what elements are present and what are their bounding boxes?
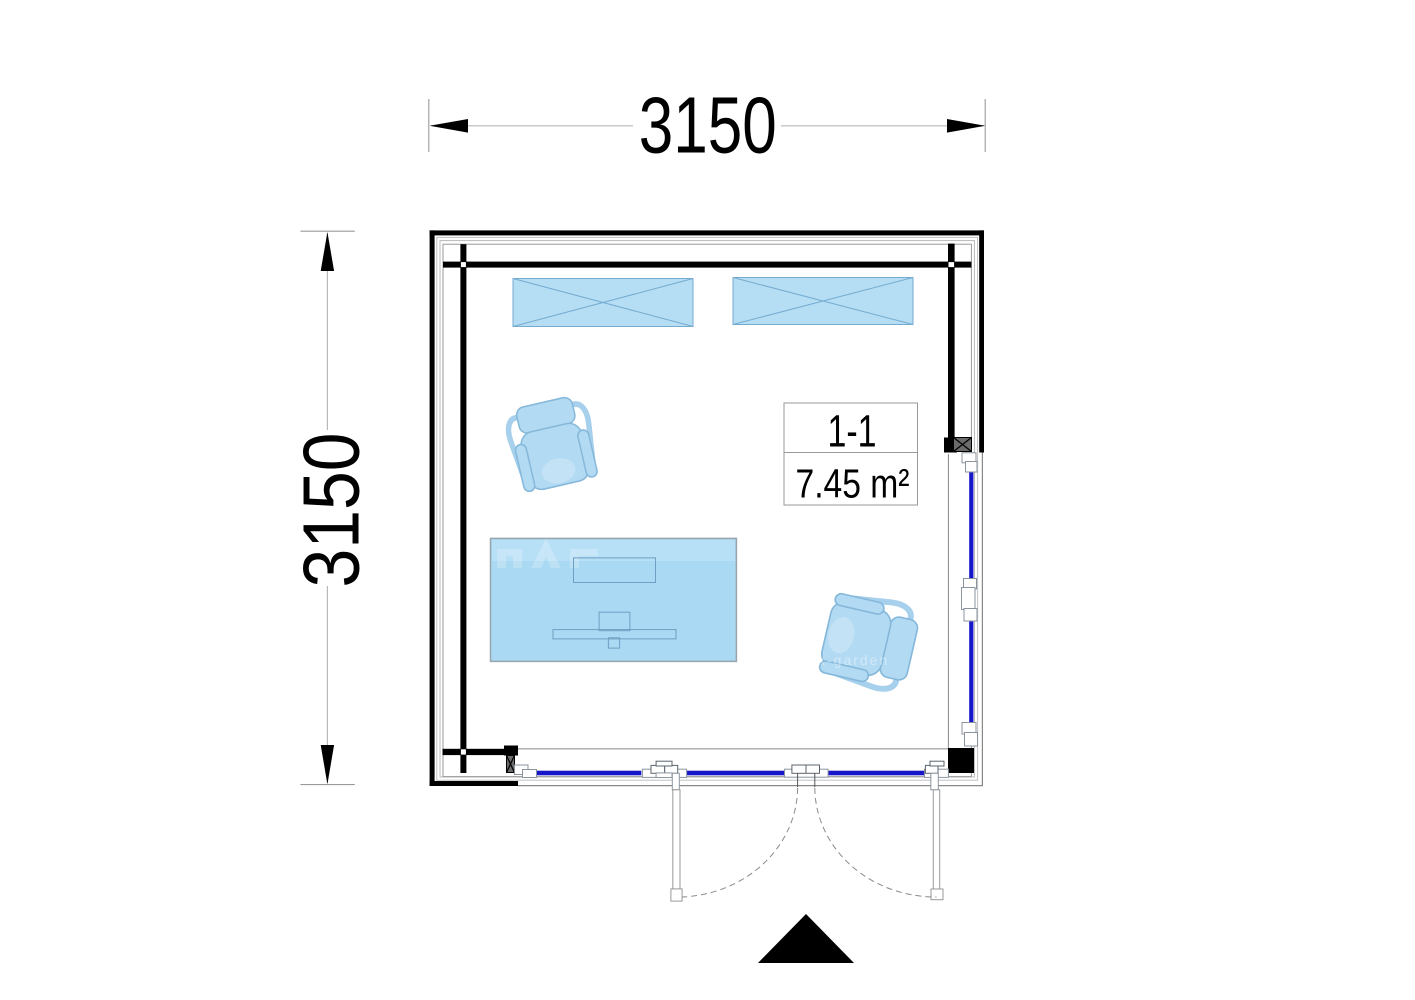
svg-text:3150: 3150	[287, 433, 376, 588]
svg-text:1-1: 1-1	[828, 406, 877, 457]
svg-text:k-garden: k-garden	[818, 652, 889, 668]
svg-text:3150: 3150	[639, 80, 777, 169]
svg-text:7.45 m²: 7.45 m²	[796, 461, 910, 507]
